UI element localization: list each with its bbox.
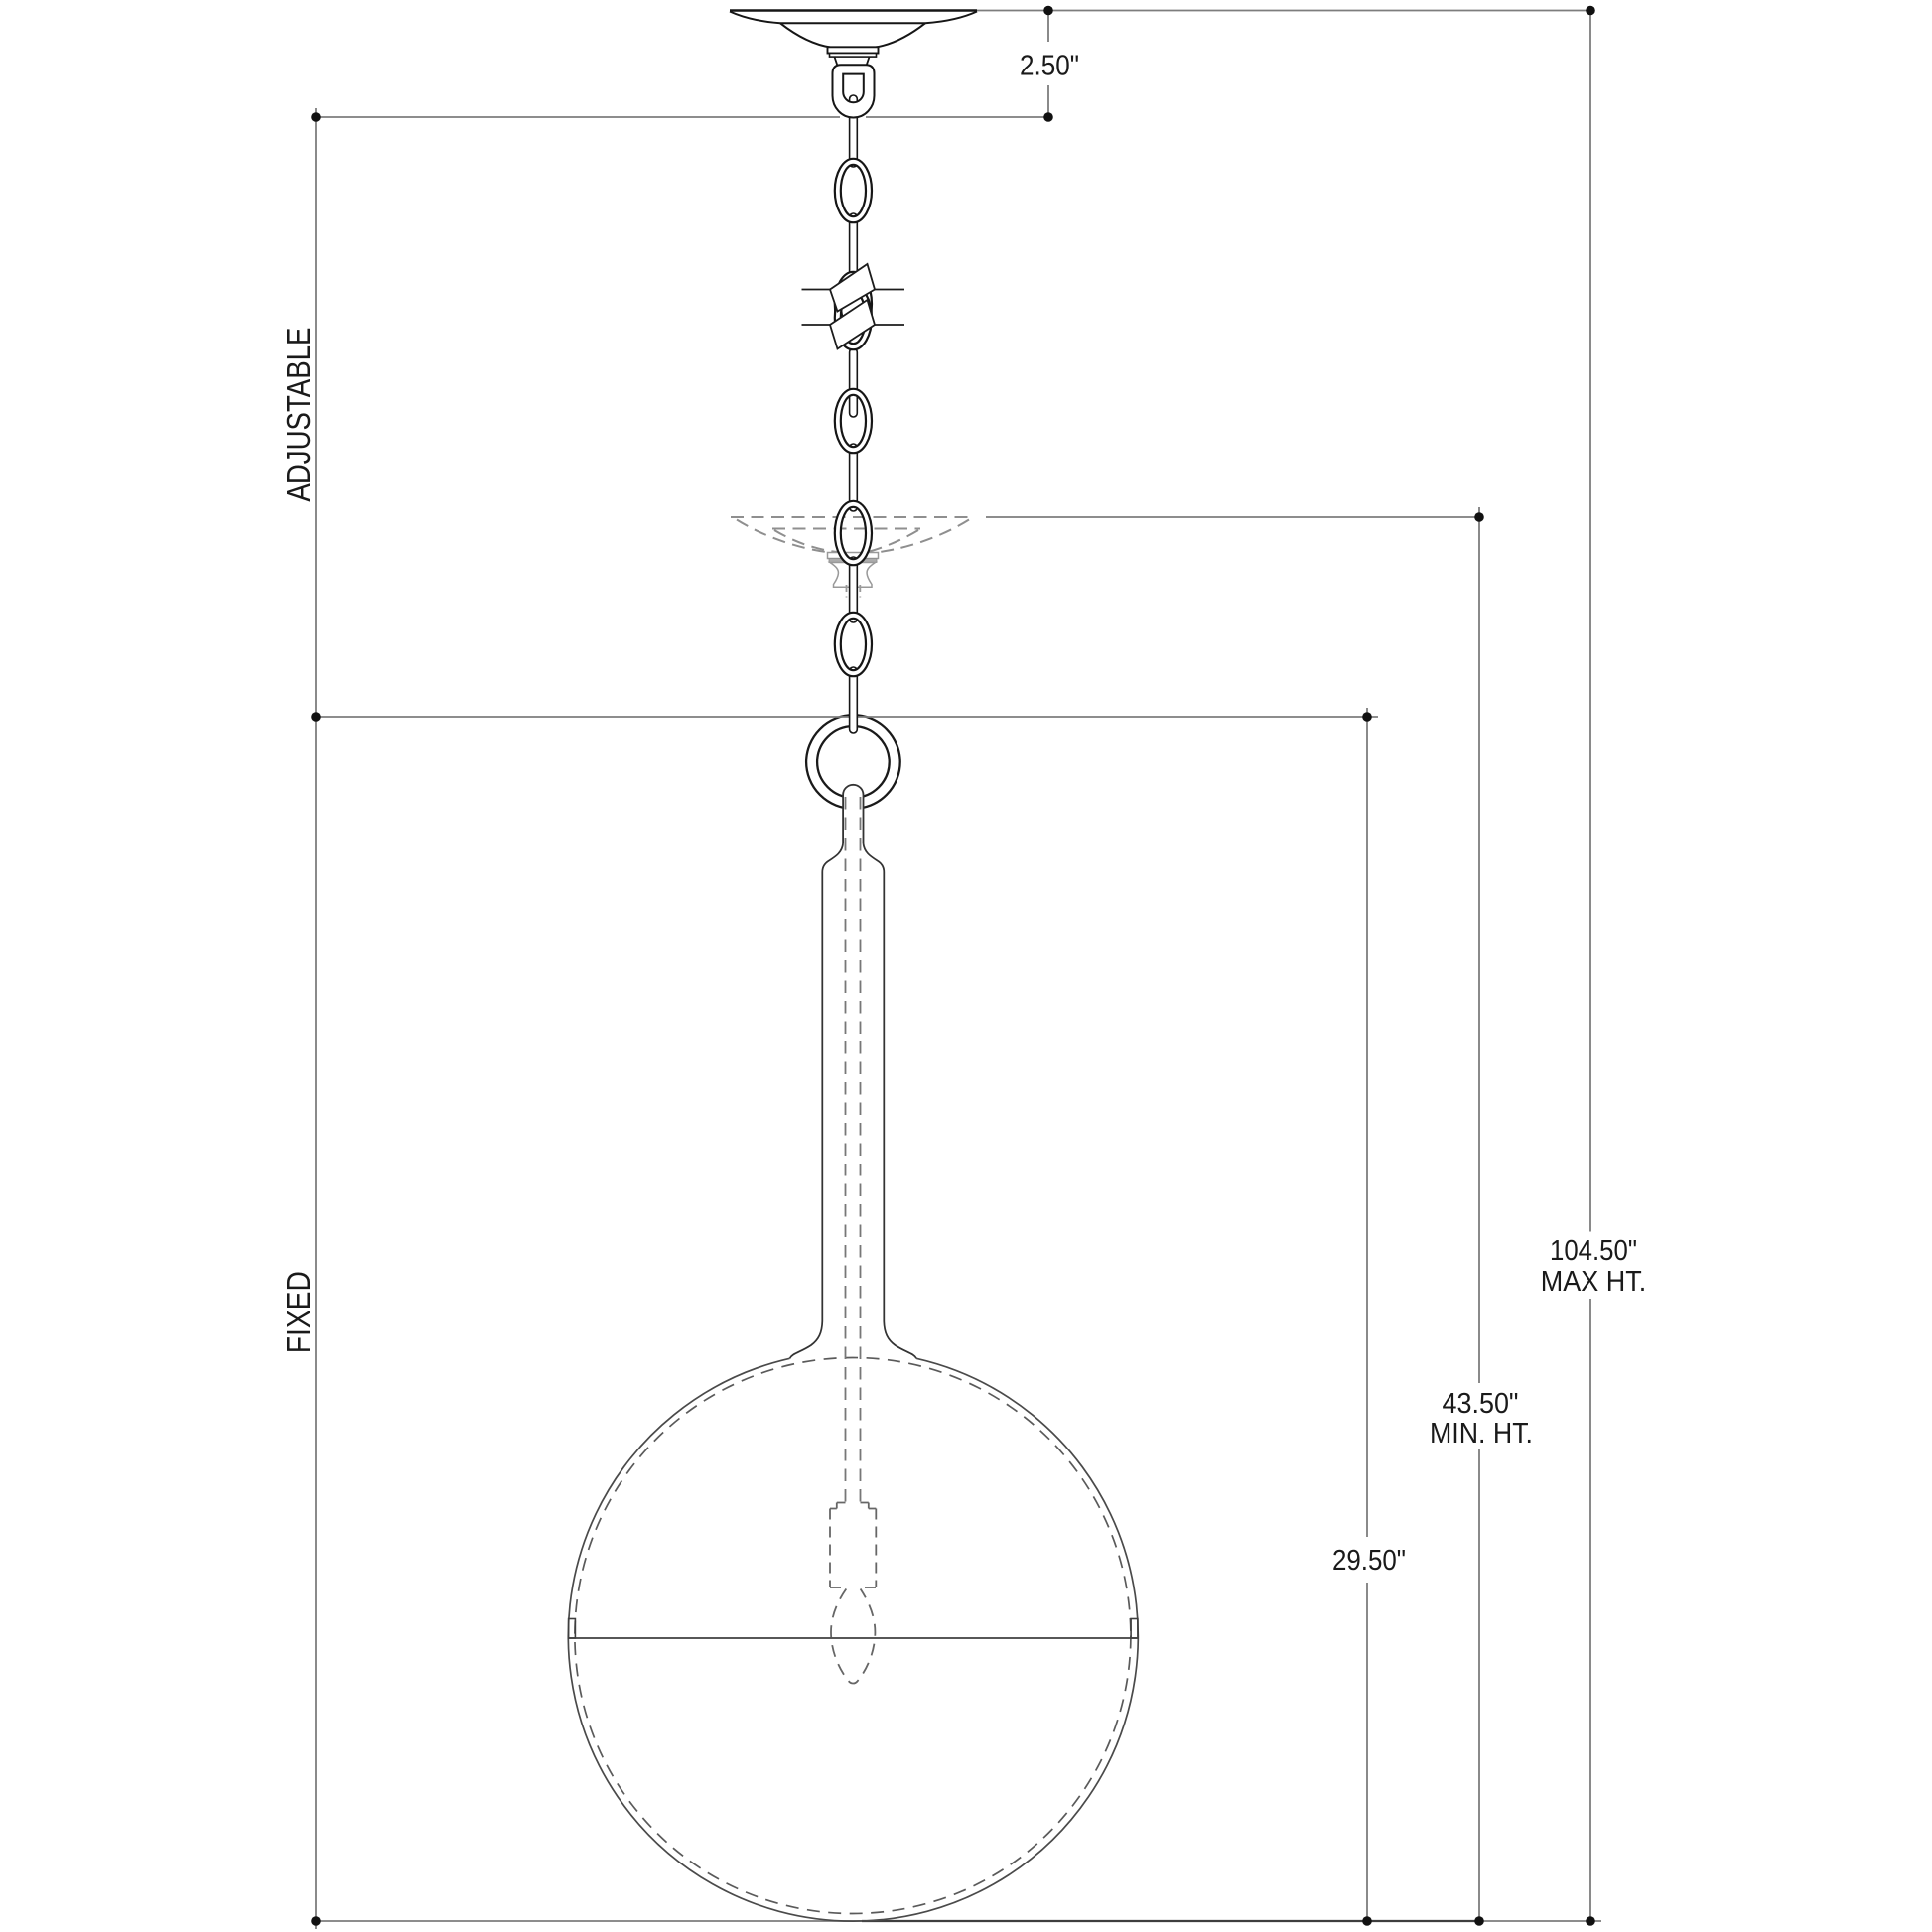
svg-text:MIN. HT.: MIN. HT.	[1430, 1418, 1533, 1449]
svg-text:104.50": 104.50"	[1550, 1235, 1637, 1267]
svg-text:29.50": 29.50"	[1332, 1545, 1406, 1577]
svg-text:ADJUSTABLE: ADJUSTABLE	[280, 328, 317, 502]
svg-text:2.50": 2.50"	[1020, 50, 1079, 81]
svg-text:MAX HT.: MAX HT.	[1541, 1266, 1647, 1298]
svg-text:43.50": 43.50"	[1443, 1388, 1519, 1420]
svg-text:FIXED: FIXED	[280, 1271, 317, 1353]
